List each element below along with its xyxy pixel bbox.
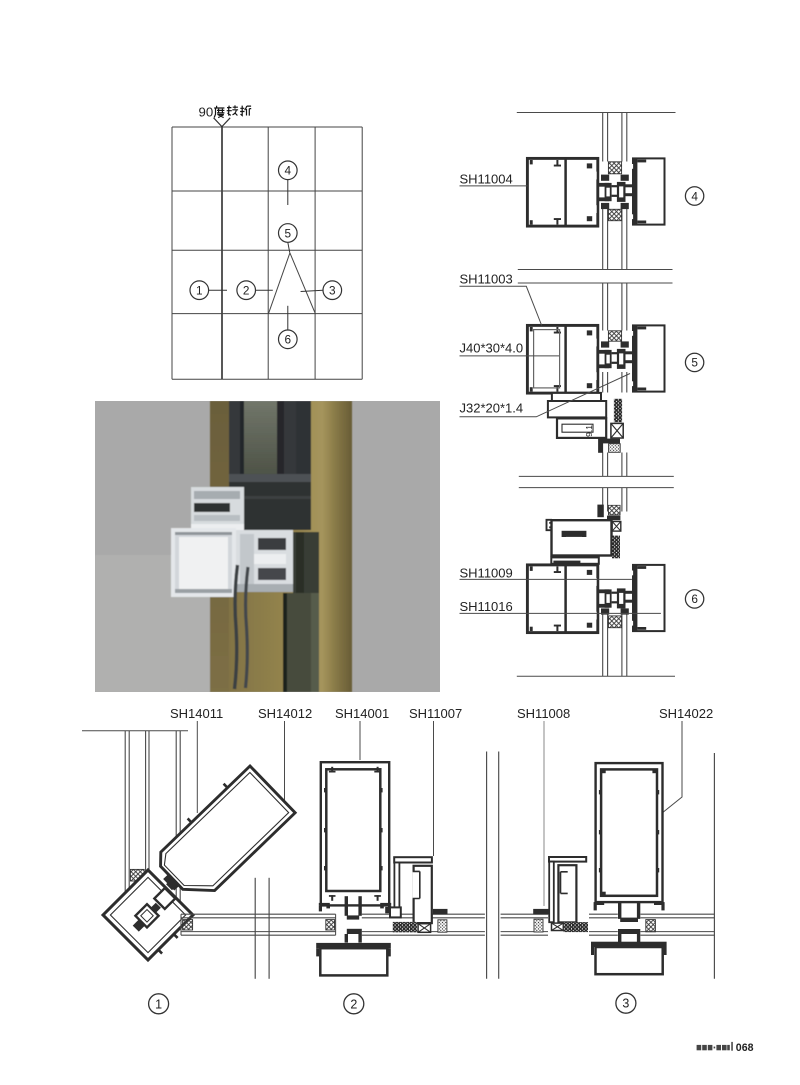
svg-text:SH11009: SH11009: [460, 566, 513, 581]
svg-text:SH14012: SH14012: [258, 706, 312, 721]
svg-text:SH14001: SH14001: [335, 706, 389, 721]
svg-text:4: 4: [691, 189, 698, 203]
svg-text:2: 2: [350, 997, 357, 1011]
svg-text:SH14022: SH14022: [659, 706, 713, 721]
svg-text:5: 5: [691, 356, 698, 370]
svg-text:90: 90: [199, 105, 214, 120]
svg-text:1: 1: [196, 284, 203, 298]
svg-text:J32*20*1.4: J32*20*1.4: [460, 401, 524, 416]
svg-text:SH14011: SH14011: [170, 706, 223, 721]
svg-text:9.1: 9.1: [584, 425, 594, 437]
svg-text:SH11004: SH11004: [460, 172, 513, 187]
svg-text:1: 1: [155, 997, 162, 1011]
svg-text:SH11016: SH11016: [460, 599, 513, 614]
svg-text:4: 4: [285, 164, 292, 178]
svg-text:6: 6: [285, 333, 292, 347]
svg-text:5: 5: [285, 226, 292, 240]
svg-text:2: 2: [243, 284, 250, 298]
svg-text:068: 068: [736, 1042, 754, 1054]
svg-text:SH11003: SH11003: [460, 271, 513, 286]
svg-text:SH11007: SH11007: [409, 706, 462, 721]
svg-text:SH11008: SH11008: [517, 706, 570, 721]
svg-text:3: 3: [622, 997, 629, 1011]
svg-text:3: 3: [329, 284, 336, 298]
svg-text:J40*30*4.0: J40*30*4.0: [460, 340, 524, 355]
svg-text:6: 6: [691, 592, 698, 606]
